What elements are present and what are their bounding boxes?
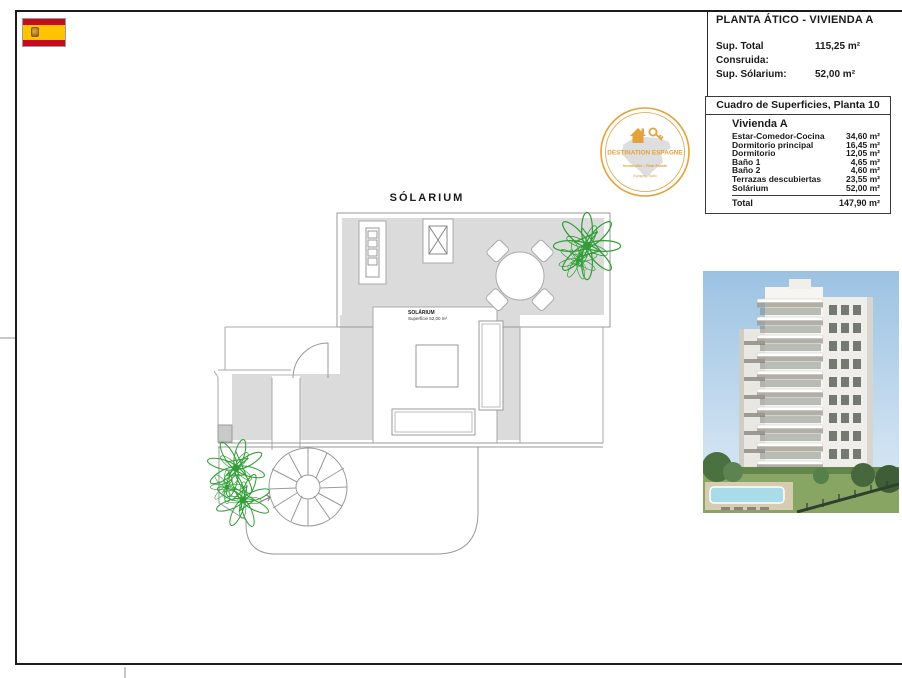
plant-bottom-left — [200, 432, 279, 536]
tower-main — [757, 279, 823, 491]
solarium-room-label: SOLÁRIUM Superficie 52,00 m² — [408, 311, 447, 321]
bench-bottom — [392, 409, 475, 435]
lower-terrace-outline — [219, 447, 478, 554]
bench-right — [479, 321, 503, 410]
central-block — [373, 307, 503, 443]
plan-sheet: PLANTA ÁTICO - VIVIENDA A Sup. Total Con… — [0, 0, 902, 678]
tower-right — [823, 297, 873, 491]
solarium-label: SÓLARIUM — [352, 192, 502, 204]
pillar — [218, 425, 232, 442]
sun-lounger — [359, 221, 386, 284]
terrace-edge — [218, 443, 603, 447]
pool — [710, 487, 784, 503]
building-photo — [703, 271, 899, 513]
spiral-staircase — [258, 448, 347, 526]
room-area: Superficie 52,00 m² — [408, 316, 447, 321]
side-table — [423, 219, 453, 263]
door-swing — [293, 343, 328, 378]
